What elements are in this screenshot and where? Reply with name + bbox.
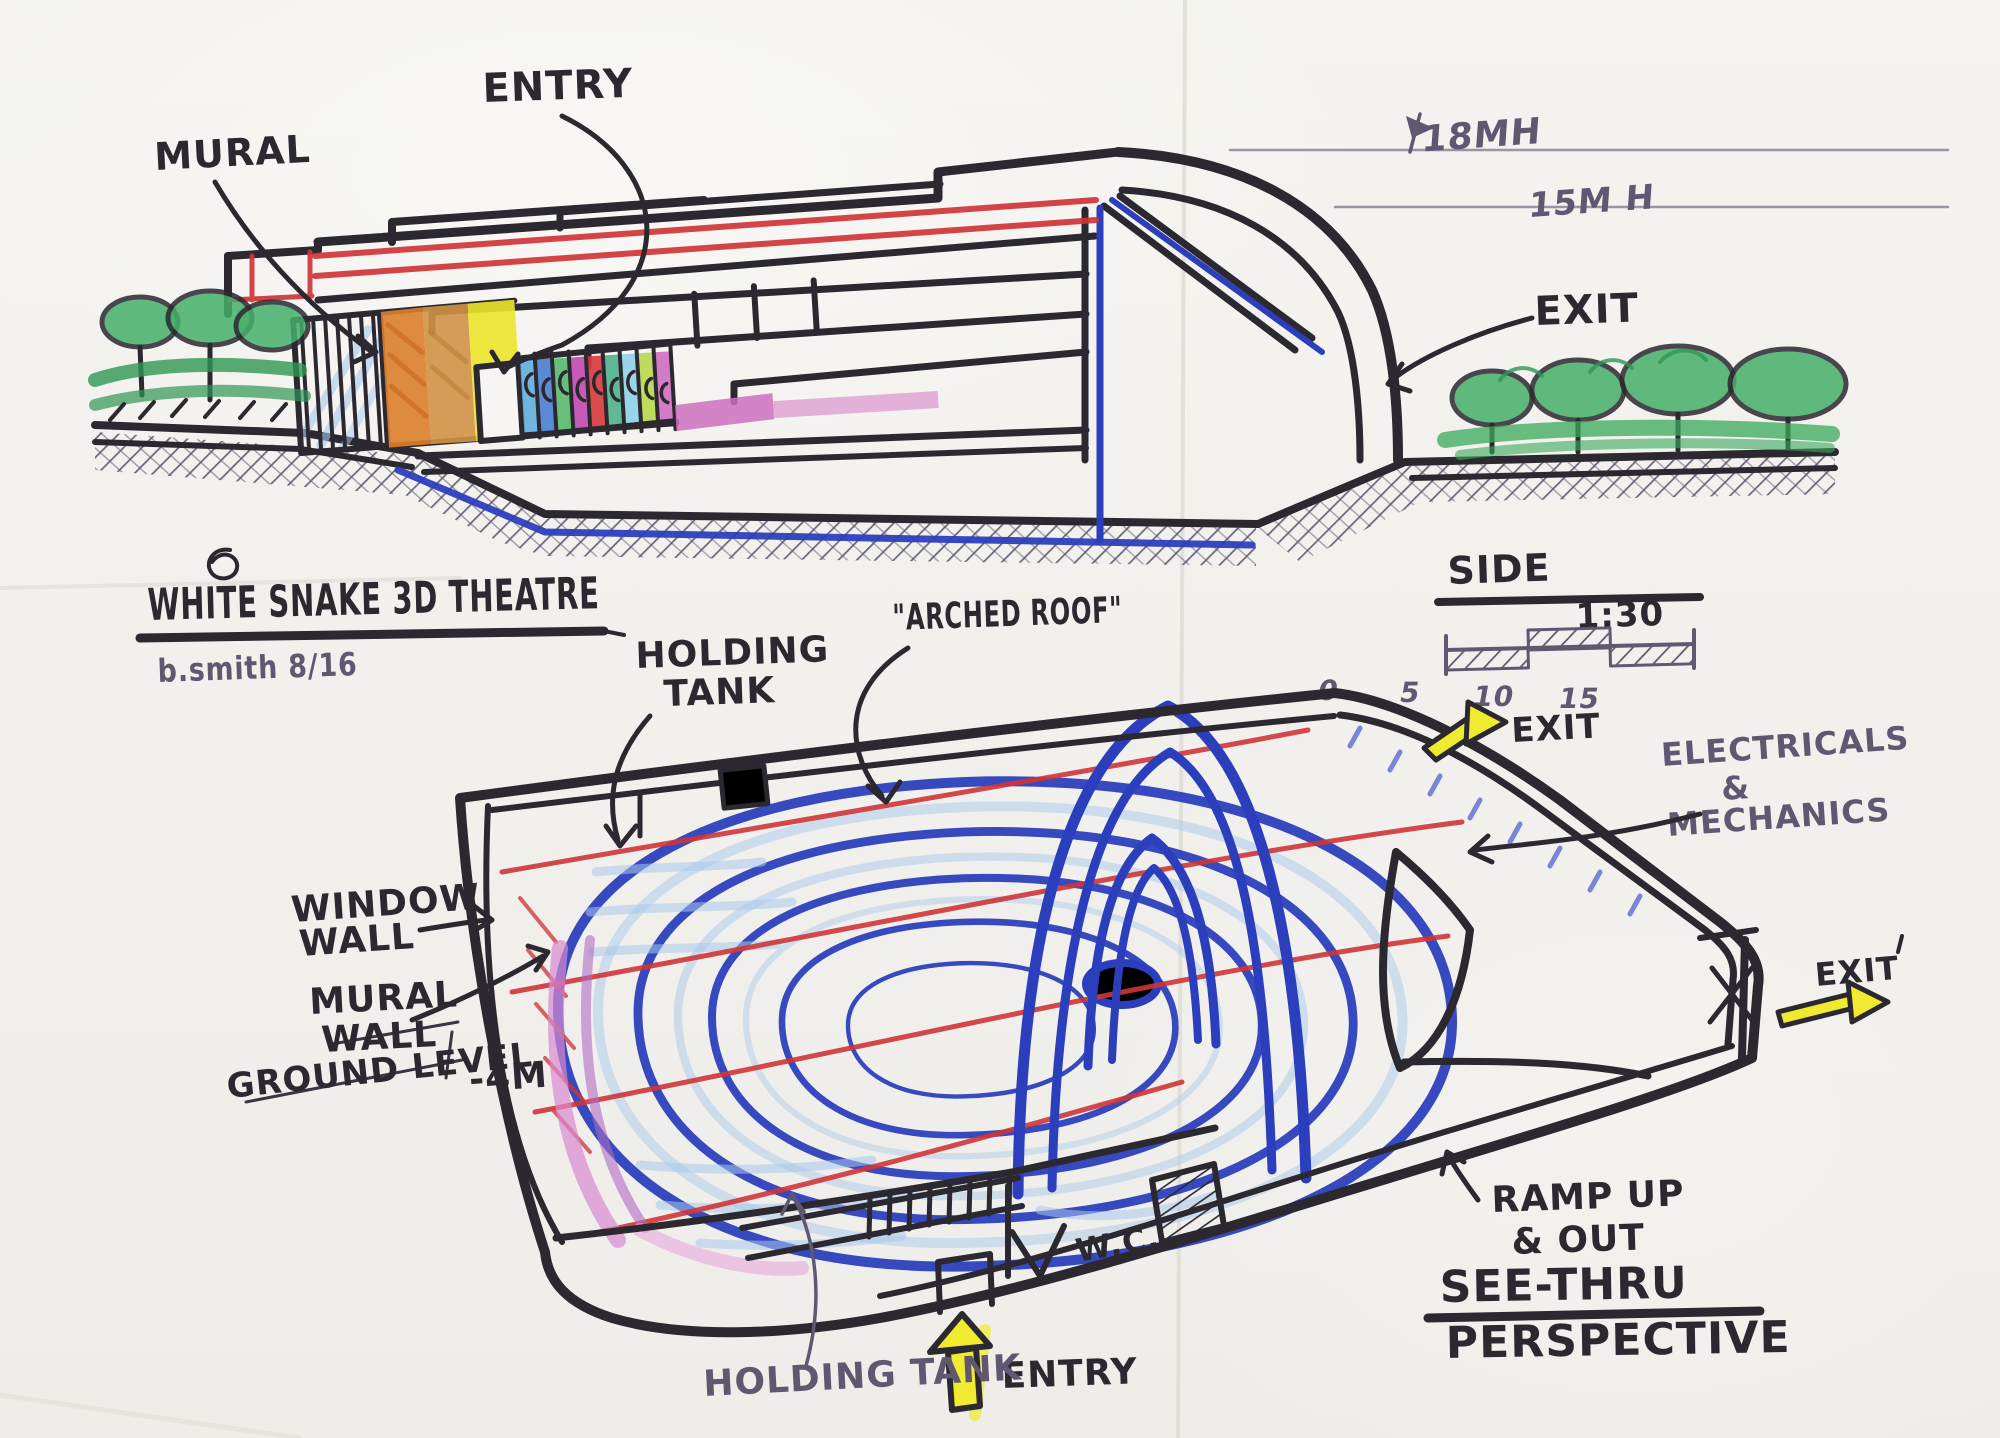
- entry-arrow-icon: [930, 1314, 990, 1352]
- view-name-side: SIDE: [1447, 545, 1551, 593]
- exit-right: EXIT: [1778, 936, 1902, 1026]
- entry-label: ENTRY: [482, 61, 634, 112]
- electricals-line2: MECHANICS: [1666, 790, 1892, 844]
- ramp-line1: RAMP UP: [1491, 1173, 1685, 1221]
- exit-right-arrow-icon: [1778, 994, 1854, 1026]
- scale-tick-5: 5: [1397, 676, 1423, 709]
- spiral-icon: [209, 550, 237, 579]
- trees-left: [95, 291, 308, 420]
- orange-mural-block: [381, 307, 431, 447]
- electricals-duct: [1383, 852, 1648, 1076]
- pink-strip: [675, 393, 775, 431]
- window-wall-line2: WALL: [298, 916, 416, 965]
- holding-tank-top-line1: HOLDING: [635, 629, 830, 677]
- sketch-paper: MURAL ENTRY EXIT 18MH 15M H WHITE: [0, 0, 2000, 1438]
- see-thru-perspective: W.C. GROUND LEVEL -4M WINDOW WALL MURAL …: [225, 590, 1911, 1415]
- height-markers: 18MH 15M H: [1230, 109, 1948, 226]
- mural-wall-line2: WALL: [320, 1014, 438, 1061]
- title-block: WHITE SNAKE 3D THEATRE b.smith 8/16: [140, 550, 624, 690]
- ramp-line2: & OUT: [1511, 1217, 1646, 1263]
- arched-roof-text: "ARCHED ROOF": [892, 590, 1123, 639]
- holding-tank-top-arrowhead-icon: [606, 826, 636, 846]
- mural-wall-line1: MURAL: [308, 974, 459, 1023]
- tan-mural-block: [423, 304, 476, 444]
- exit-top: EXIT: [1424, 702, 1602, 760]
- exit-label: EXIT: [1534, 285, 1640, 335]
- height-18m-label: 18MH: [1420, 109, 1543, 160]
- view-title-line1: SEE-THRU: [1439, 1258, 1688, 1313]
- side-elevation: MURAL ENTRY EXIT 18MH 15M H: [95, 61, 1948, 566]
- perspective-title: SEE-THRU PERSPECTIVE: [1428, 1258, 1791, 1369]
- view-title-line2: PERSPECTIVE: [1445, 1312, 1791, 1369]
- mural-label: MURAL: [153, 127, 312, 179]
- sketch-canvas: MURAL ENTRY EXIT 18MH 15M H WHITE: [0, 0, 2000, 1438]
- ramp-label: RAMP UP & OUT: [1442, 1152, 1685, 1263]
- ground-level-value: -4M: [468, 1055, 549, 1101]
- scale-block: SIDE 1:30 0 5 10 15: [1315, 545, 1700, 715]
- electricals-line1: ELECTRICALS: [1660, 719, 1911, 774]
- entry-door: [476, 363, 523, 441]
- holding-tank-top-line2: TANK: [663, 670, 776, 715]
- window-wall-label: WINDOW WALL: [290, 877, 492, 965]
- mural-panels: [518, 343, 677, 438]
- sheet-title: WHITE SNAKE 3D THEATRE: [147, 568, 600, 631]
- trees-right: [1445, 346, 1846, 455]
- ramp-loops: [558, 781, 1452, 1266]
- wc-label: W.C.: [1073, 1218, 1163, 1270]
- exit-right-label: EXIT: [1813, 949, 1900, 994]
- hatched-vent-panel: [1152, 1164, 1224, 1242]
- height-15m-label: 15M H: [1527, 177, 1656, 226]
- exit-top-label: EXIT: [1510, 706, 1601, 751]
- signature: b.smith 8/16: [157, 645, 358, 690]
